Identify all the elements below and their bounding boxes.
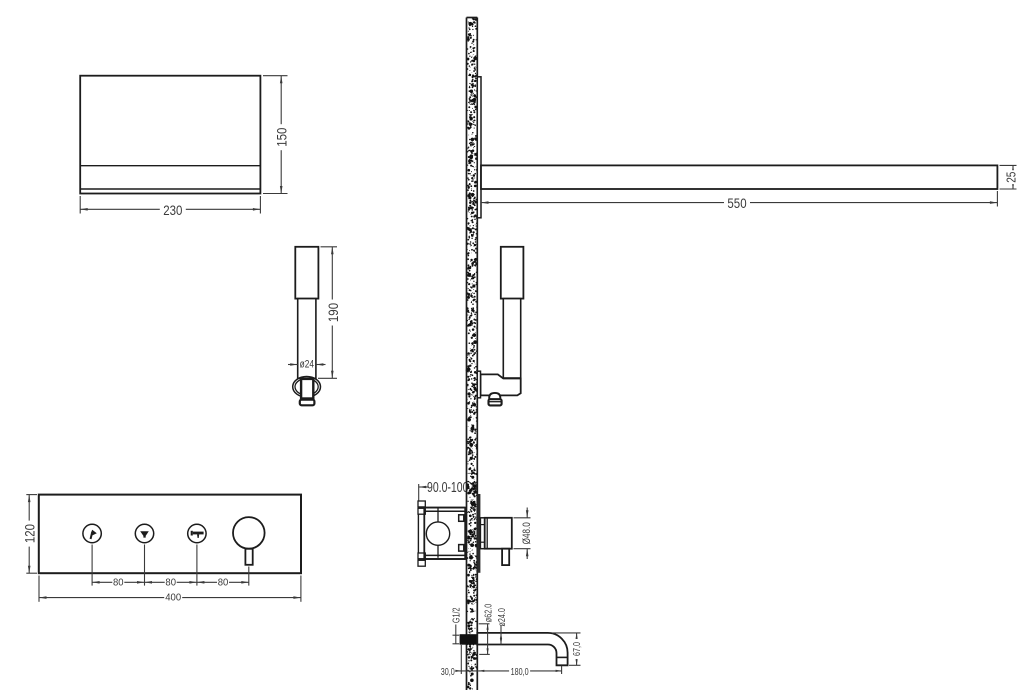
svg-text:80: 80 xyxy=(113,577,124,588)
svg-text:G1/2: G1/2 xyxy=(450,607,461,623)
svg-text:120: 120 xyxy=(21,524,37,543)
svg-text:150: 150 xyxy=(274,128,290,147)
svg-text:30,0: 30,0 xyxy=(441,666,455,677)
svg-text:ø24: ø24 xyxy=(300,359,315,371)
svg-text:67,0: 67,0 xyxy=(571,642,582,656)
svg-text:230: 230 xyxy=(163,202,182,218)
svg-text:ø24.0: ø24.0 xyxy=(496,608,507,627)
svg-text:80: 80 xyxy=(218,577,229,588)
svg-text:180,0: 180,0 xyxy=(511,666,529,677)
svg-text:25: 25 xyxy=(1006,172,1019,183)
svg-text:190: 190 xyxy=(325,303,341,322)
svg-text:ø62.0: ø62.0 xyxy=(482,604,493,623)
svg-text:Ø48.0: Ø48.0 xyxy=(521,522,534,544)
svg-text:550: 550 xyxy=(727,195,746,211)
svg-text:400: 400 xyxy=(165,592,181,603)
svg-text:80: 80 xyxy=(165,577,176,588)
